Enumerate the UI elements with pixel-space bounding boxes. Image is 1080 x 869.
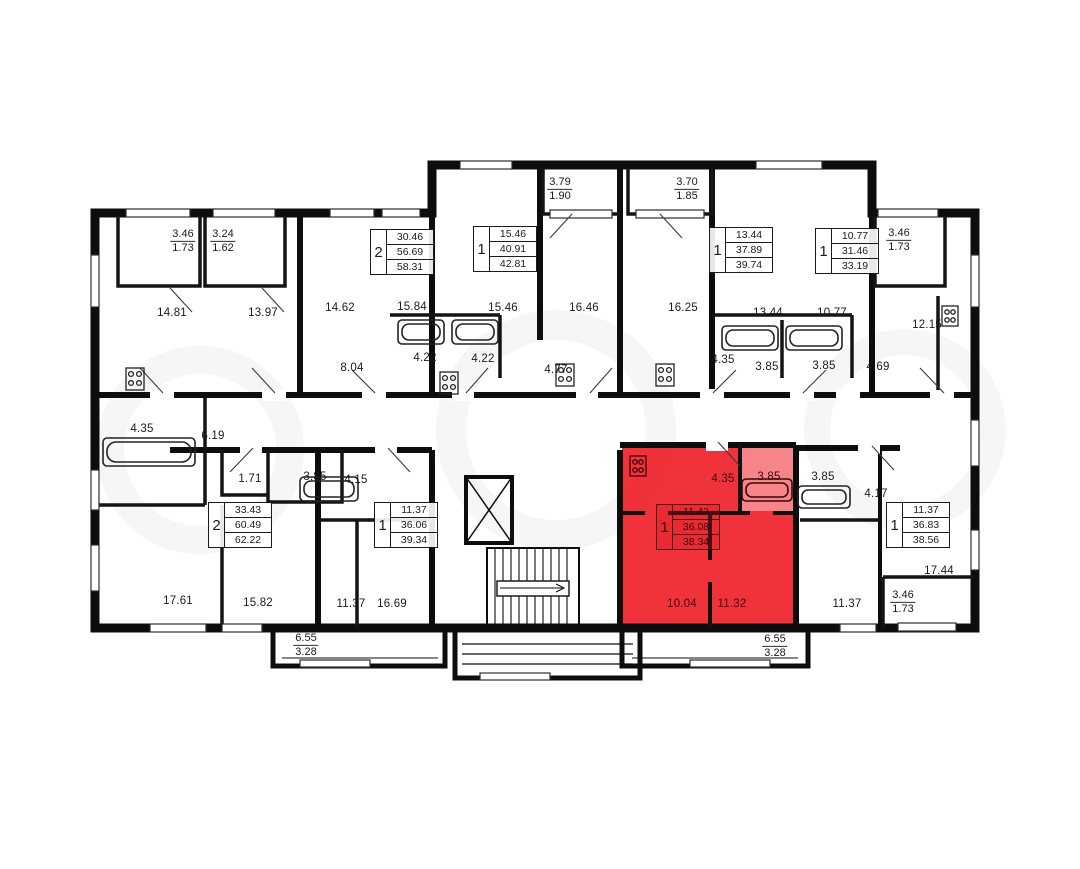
room-area-label-highlighted: 3.85 <box>757 471 780 483</box>
balcony-area-bottom: 1.62 <box>210 241 235 255</box>
unit-rooms-count: 2 <box>371 230 387 274</box>
room-area-label: 4.15 <box>344 474 367 486</box>
balcony-area-top: 6.55 <box>762 633 787 646</box>
unit-area-total: 56.69 <box>387 245 433 260</box>
room-area-label: 15.82 <box>243 597 273 609</box>
balcony-area-label: 6.55 3.28 <box>293 632 318 658</box>
balcony-area-label: 3.70 1.85 <box>674 176 699 202</box>
room-area-label-highlighted: 11.32 <box>718 598 747 610</box>
unit-stats-box: 2 33.43 60.49 62.22 <box>208 502 272 548</box>
room-area-label: 3.85 <box>755 361 778 373</box>
balcony-area-top: 3.24 <box>210 228 235 241</box>
room-area-label: 4.22 <box>471 353 494 365</box>
balcony-area-top: 3.79 <box>547 176 572 189</box>
room-area-label: 4.77 <box>544 364 567 376</box>
entrance-porch <box>455 628 640 678</box>
room-area-label: 12.15 <box>912 319 942 331</box>
balcony-area-bottom: 3.28 <box>293 645 318 659</box>
unit-rooms-count: 1 <box>657 505 673 549</box>
unit-stats-box: 2 30.46 56.69 58.31 <box>370 229 434 275</box>
balcony-area-bottom: 3.28 <box>762 646 787 660</box>
unit-stats-box: 1 11.37 36.06 39.34 <box>374 502 438 548</box>
balcony-area-bottom: 1.73 <box>170 241 195 255</box>
room-area-label: 3.85 <box>303 471 326 483</box>
room-area-label: 17.44 <box>924 565 954 577</box>
unit-rooms-count: 1 <box>710 228 726 272</box>
unit-rooms-count: 1 <box>887 503 903 547</box>
balcony-area-bottom: 1.90 <box>547 189 572 203</box>
unit-rooms-count: 1 <box>816 229 832 273</box>
room-area-label: 4.17 <box>864 488 887 500</box>
balcony-area-label: 3.46 1.73 <box>170 228 195 254</box>
room-area-label: 3.85 <box>812 360 835 372</box>
unit-stats-box: 1 10.77 31.46 33.19 <box>815 228 879 274</box>
unit-area-living: 13.44 <box>726 228 772 243</box>
room-area-label-highlighted: 10.04 <box>667 598 697 610</box>
balcony-area-label: 3.46 1.73 <box>890 589 915 615</box>
unit-area-total: 31.46 <box>832 244 878 259</box>
balcony-area-top: 3.46 <box>890 589 915 602</box>
balcony-area-top: 3.46 <box>170 228 195 241</box>
unit-rooms-count: 1 <box>375 503 391 547</box>
unit-area-full: 39.34 <box>391 533 437 547</box>
unit-area-full: 38.34 <box>673 535 719 549</box>
unit-area-total: 36.08 <box>673 520 719 535</box>
unit-area-full: 62.22 <box>225 533 271 547</box>
room-area-label: 11.37 <box>833 598 862 610</box>
room-area-label: 16.46 <box>569 302 599 314</box>
unit-area-total: 37.89 <box>726 243 772 258</box>
unit-area-living: 15.46 <box>490 227 536 242</box>
balcony-area-label: 3.24 1.62 <box>210 228 235 254</box>
room-area-label: 1.71 <box>238 473 261 485</box>
floor-plan: 14.81 13.97 14.62 15.84 8.04 4.22 4.22 1… <box>0 0 1080 869</box>
balcony-area-label: 3.46 1.73 <box>886 227 911 253</box>
room-area-label: 14.81 <box>157 307 187 319</box>
balcony-area-top: 3.70 <box>674 176 699 189</box>
unit-area-total: 60.49 <box>225 518 271 533</box>
unit-area-full: 38.56 <box>903 533 949 547</box>
unit-area-living: 33.43 <box>225 503 271 518</box>
unit-area-living: 10.77 <box>832 229 878 244</box>
room-area-label: 17.61 <box>163 595 193 607</box>
unit-area-total: 40.91 <box>490 242 536 257</box>
unit-area-full: 33.19 <box>832 259 878 273</box>
balcony-area-top: 3.46 <box>886 227 911 240</box>
unit-area-full: 39.74 <box>726 258 772 272</box>
room-area-label: 6.19 <box>201 430 224 442</box>
unit-area-living: 30.46 <box>387 230 433 245</box>
room-area-label-highlighted: 4.35 <box>711 473 734 485</box>
unit-stats-box: 1 11.37 36.83 38.56 <box>886 502 950 548</box>
room-area-label: 15.84 <box>397 301 427 313</box>
room-area-label: 10.77 <box>817 307 847 319</box>
room-area-label: 11.37 <box>337 598 366 610</box>
unit-area-living: 11.42 <box>673 505 719 520</box>
room-area-label: 4.69 <box>866 361 889 373</box>
balcony-area-bottom: 1.73 <box>886 240 911 254</box>
room-area-label: 13.44 <box>753 307 783 319</box>
floor-plan-drawing <box>0 0 1080 869</box>
unit-rooms-count: 1 <box>474 227 490 271</box>
unit-stats-box: 1 15.46 40.91 42.81 <box>473 226 537 272</box>
balcony-area-label: 3.79 1.90 <box>547 176 572 202</box>
room-area-label: 16.69 <box>377 598 407 610</box>
unit-area-total: 36.06 <box>391 518 437 533</box>
room-area-label: 16.25 <box>668 302 698 314</box>
balcony-area-bottom: 1.85 <box>674 189 699 203</box>
room-area-label: 4.35 <box>711 354 734 366</box>
room-area-label: 3.85 <box>811 471 834 483</box>
unit-stats-box-highlighted[interactable]: 1 11.42 36.08 38.34 <box>656 504 720 550</box>
unit-rooms-count: 2 <box>209 503 225 547</box>
unit-area-full: 42.81 <box>490 257 536 271</box>
room-area-label: 13.97 <box>248 307 278 319</box>
unit-area-living: 11.37 <box>903 503 949 518</box>
balcony-area-label: 6.55 3.28 <box>762 633 787 659</box>
room-area-label: 14.62 <box>325 302 355 314</box>
room-area-label: 15.46 <box>488 302 518 314</box>
balcony-area-bottom: 1.73 <box>890 602 915 616</box>
balconies <box>273 628 808 678</box>
unit-area-full: 58.31 <box>387 260 433 274</box>
room-area-label: 8.04 <box>340 362 363 374</box>
unit-area-total: 36.83 <box>903 518 949 533</box>
room-area-label: 4.22 <box>413 352 436 364</box>
balcony-area-top: 6.55 <box>293 632 318 645</box>
unit-area-living: 11.37 <box>391 503 437 518</box>
room-area-label: 4.35 <box>130 423 153 435</box>
unit-stats-box: 1 13.44 37.89 39.74 <box>709 227 773 273</box>
